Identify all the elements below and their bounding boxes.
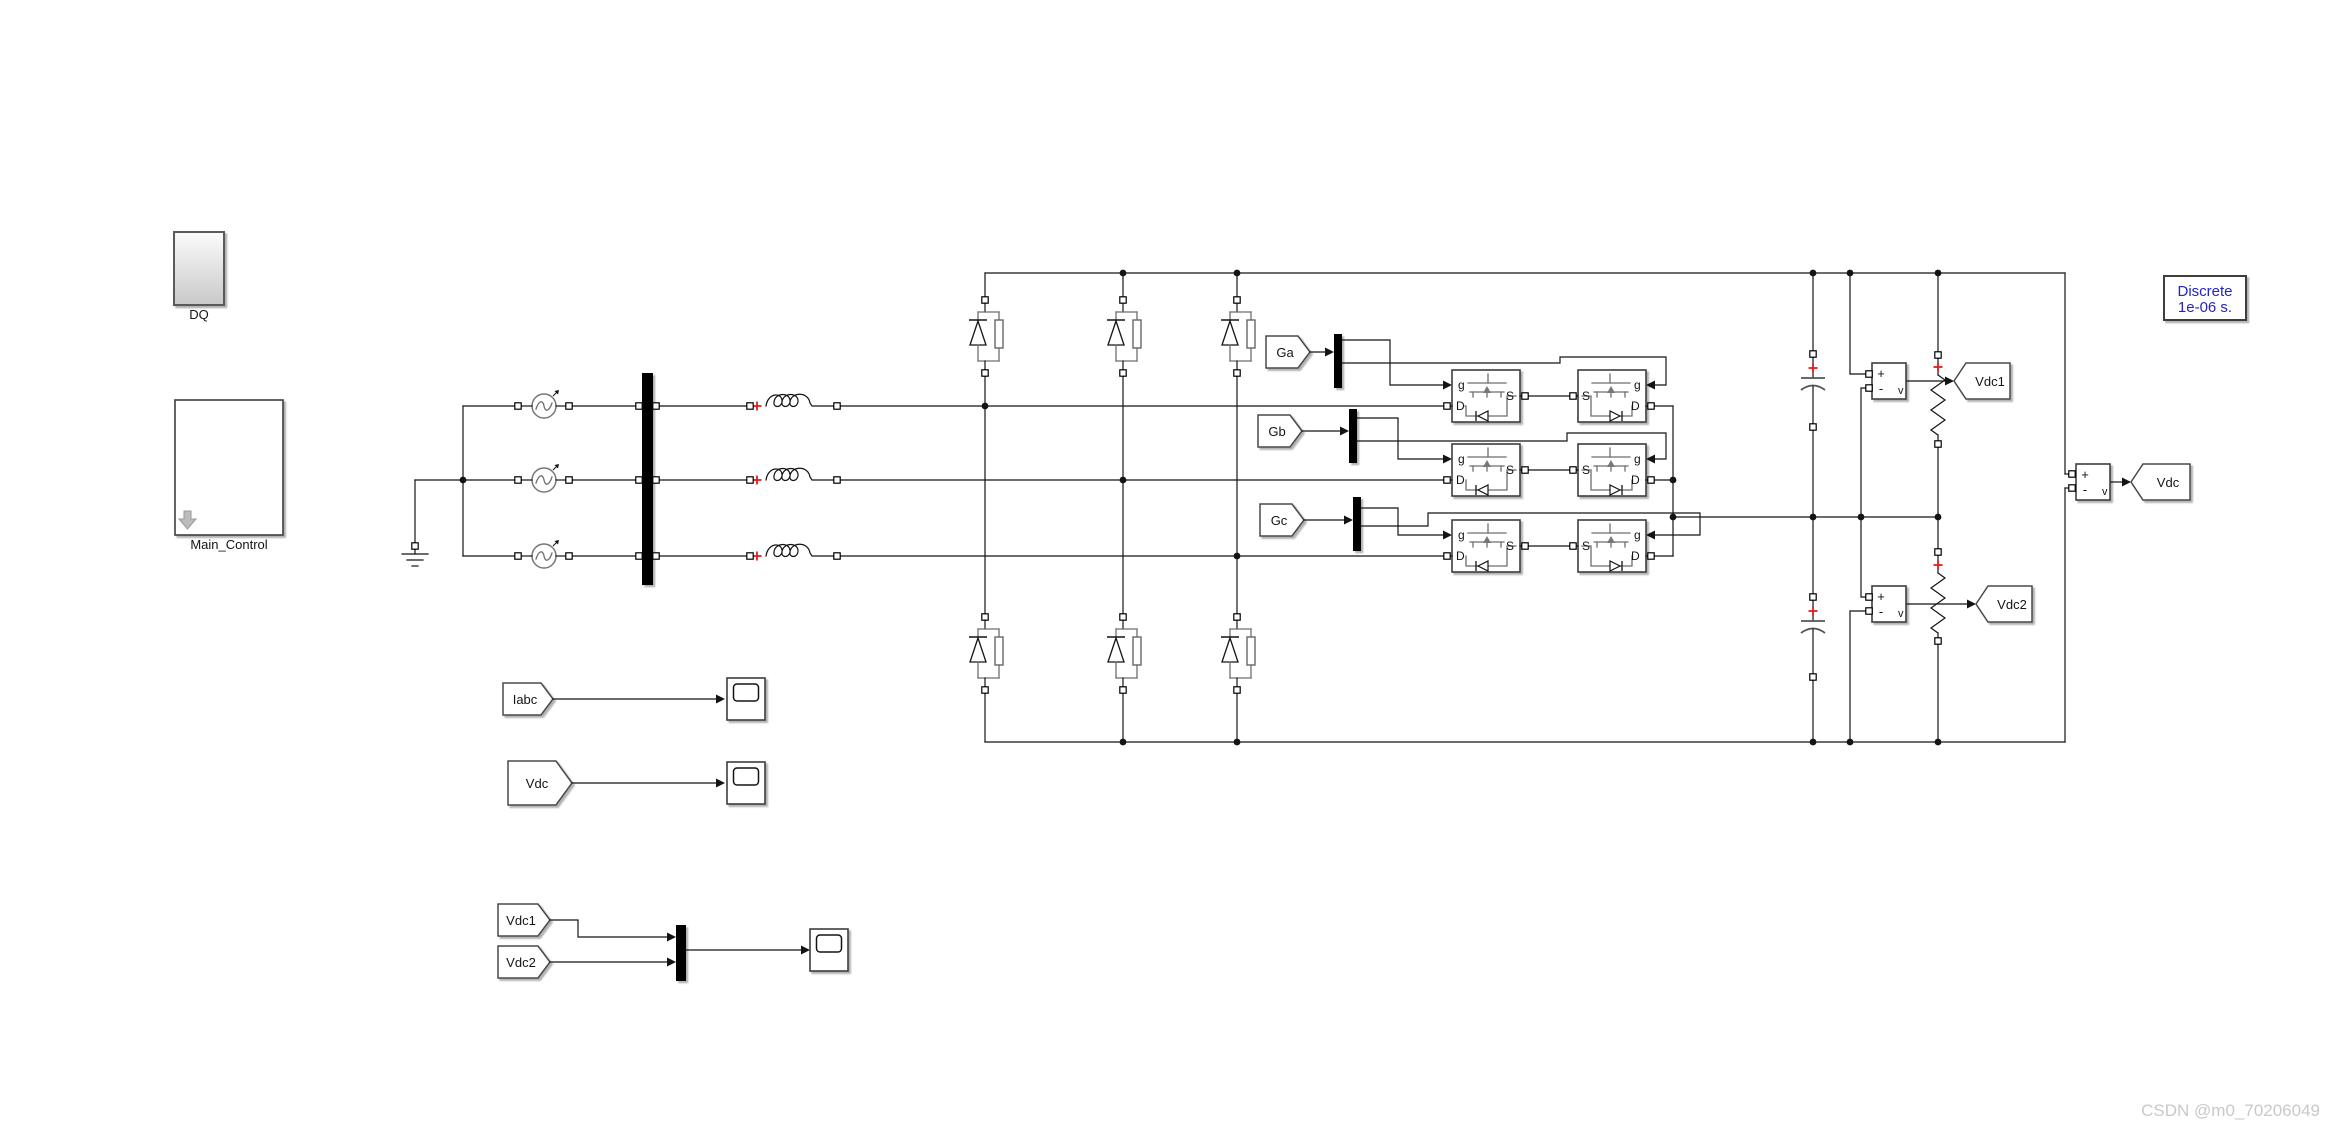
minus-terminal-label: - (1879, 381, 1883, 396)
inductor-c[interactable] (753, 544, 838, 560)
source-port-label: S (1582, 539, 1590, 553)
source-port-label: S (1506, 539, 1514, 553)
voltage-measurement-vdc2[interactable]: + - v (1872, 586, 1906, 622)
diode-leg-bottom-a[interactable] (969, 614, 1003, 693)
capacitor-bottom[interactable] (1801, 600, 1825, 674)
goto-tag-vdc2[interactable]: Vdc2 (1976, 586, 2032, 622)
diode-leg-top-a[interactable] (969, 297, 1003, 376)
plus-terminal-label: + (2081, 467, 2089, 482)
inductor-b[interactable] (753, 468, 838, 484)
mosfet-a-right[interactable]: g S D (1578, 370, 1646, 422)
bridge-rail-wires (985, 273, 2068, 742)
dq-block-label: DQ (189, 307, 209, 322)
voltage-measurement-vdc1[interactable]: + - v (1872, 363, 1906, 399)
gate-port-label: g (1634, 452, 1641, 466)
goto-tag-vdc1-label: Vdc1 (1975, 374, 2005, 389)
simulink-model-canvas: DQ Main_Control Ga (0, 0, 2328, 1128)
from-tag-vdc1[interactable]: Vdc1 (498, 904, 550, 936)
from-tag-vdc2[interactable]: Vdc2 (498, 946, 550, 978)
source-port-label: S (1506, 389, 1514, 403)
from-tag-gc[interactable]: Gc (1260, 504, 1304, 536)
from-tag-iabc-label: Iabc (513, 692, 538, 707)
goto-tag-vdc[interactable]: Vdc (2131, 464, 2190, 500)
connection-ports (412, 351, 2075, 680)
powergui-line2: 1e-06 s. (2178, 299, 2232, 316)
drain-port-label: D (1456, 399, 1465, 413)
scope-vdc12[interactable] (810, 929, 848, 971)
gate-port-label: g (1458, 528, 1465, 542)
scope-iabc[interactable] (727, 678, 765, 720)
dq-block[interactable]: DQ (174, 232, 224, 322)
from-tag-gc-label: Gc (1271, 513, 1288, 528)
voltage-output-label: v (1898, 608, 1904, 620)
resistor-bottom[interactable] (1931, 555, 1945, 638)
voltage-output-label: v (1898, 385, 1904, 397)
voltage-output-label: v (2102, 486, 2108, 498)
junction-dots (460, 270, 1942, 746)
three-phase-bus-bar[interactable] (642, 373, 653, 585)
demux-gb[interactable] (1349, 409, 1357, 463)
gate-port-label: g (1458, 452, 1465, 466)
ground-symbol[interactable] (402, 549, 428, 566)
diode-leg-top-b[interactable] (1107, 297, 1141, 376)
plus-terminal-label: + (1877, 366, 1885, 381)
mosfet-b-right[interactable]: g S D (1578, 444, 1646, 496)
powergui-block[interactable]: Discrete 1e-06 s. (2164, 276, 2246, 320)
scope-vdc[interactable] (727, 762, 765, 804)
goto-tag-vdc2-label: Vdc2 (1997, 597, 2027, 612)
source-port-label: S (1582, 463, 1590, 477)
drain-port-label: D (1456, 473, 1465, 487)
from-tag-vdc-label: Vdc (526, 776, 549, 791)
from-tag-gb-label: Gb (1268, 424, 1285, 439)
gate-port-label: g (1634, 528, 1641, 542)
capacitor-top[interactable] (1801, 357, 1825, 424)
powergui-line1: Discrete (2177, 283, 2232, 300)
from-tag-ga[interactable]: Ga (1266, 336, 1310, 368)
main-control-block[interactable]: Main_Control (175, 400, 283, 552)
drain-port-label: D (1456, 549, 1465, 563)
drain-port-label: D (1631, 473, 1640, 487)
main-control-label: Main_Control (190, 537, 267, 552)
switch-wire-layer (1450, 396, 1938, 556)
mux-vdc12[interactable] (676, 925, 686, 981)
from-tag-vdc1-label: Vdc1 (506, 913, 536, 928)
gate-port-label: g (1634, 378, 1641, 392)
mosfet-c-left[interactable]: g S D (1452, 520, 1520, 572)
diode-leg-top-c[interactable] (1221, 297, 1255, 376)
minus-terminal-label: - (2083, 482, 2087, 497)
source-port-label: S (1582, 389, 1590, 403)
from-tag-vdc2-label: Vdc2 (506, 955, 536, 970)
gate-port-label: g (1458, 378, 1465, 392)
ac-source-b[interactable] (532, 464, 559, 492)
watermark-text: CSDN @m0_70206049 (2141, 1101, 2320, 1120)
plus-terminal-label: + (1877, 589, 1885, 604)
diode-leg-bottom-c[interactable] (1221, 614, 1255, 693)
from-tag-iabc[interactable]: Iabc (503, 683, 553, 715)
mosfet-b-left[interactable]: g S D (1452, 444, 1520, 496)
minus-terminal-label: - (1879, 604, 1883, 619)
diode-leg-bottom-b[interactable] (1107, 614, 1141, 693)
from-tag-vdc[interactable]: Vdc (508, 761, 572, 805)
mosfet-c-right[interactable]: g S D (1578, 520, 1646, 572)
goto-tag-vdc1[interactable]: Vdc1 (1954, 363, 2010, 399)
mosfet-a-left[interactable]: g S D (1452, 370, 1520, 422)
goto-tag-vdc-label: Vdc (2157, 475, 2180, 490)
dc-wire-layer (1813, 273, 2131, 742)
demux-gc[interactable] (1353, 497, 1361, 551)
resistor-top[interactable] (1931, 358, 1945, 441)
from-tag-ga-label: Ga (1276, 345, 1294, 360)
voltage-measurement-vdc[interactable]: + - v (2076, 464, 2110, 500)
drain-port-label: D (1631, 399, 1640, 413)
inductor-a[interactable] (753, 394, 838, 410)
from-tag-gb[interactable]: Gb (1258, 415, 1302, 447)
ac-source-a[interactable] (532, 390, 559, 418)
demux-ga[interactable] (1334, 334, 1342, 388)
ac-source-c[interactable] (532, 540, 559, 568)
drain-port-label: D (1631, 549, 1640, 563)
source-port-label: S (1506, 463, 1514, 477)
